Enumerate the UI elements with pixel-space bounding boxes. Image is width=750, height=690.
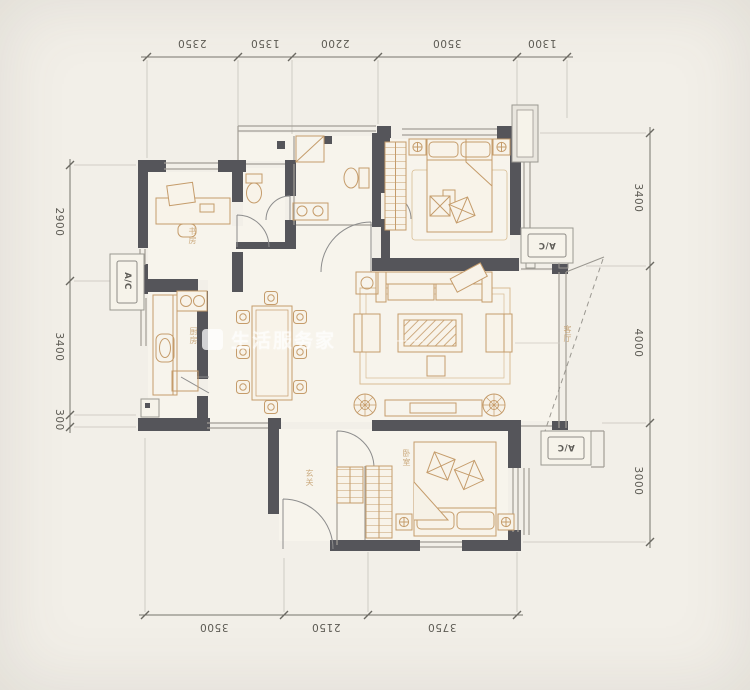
watermark-logo	[202, 329, 223, 350]
bedroom1-furniture	[385, 139, 510, 240]
room-label-living: 客厅	[562, 325, 573, 343]
dim-bottom-1: 3500	[184, 621, 244, 633]
dim-left-2: 3400	[53, 317, 65, 377]
floor-plan-photo: 2350 1350 2200 3500 1300 3500 2150 3750 …	[0, 0, 750, 690]
watermark-dash: ——	[396, 331, 422, 349]
dim-bottom-2: 2150	[296, 621, 356, 633]
dim-left-1: 2900	[53, 192, 65, 252]
dim-right-1: 3400	[632, 168, 644, 228]
dim-top-5: 1300	[512, 37, 572, 49]
ac-label-bottom-right: A/C	[546, 442, 586, 452]
ac-label-left: A/C	[122, 261, 132, 301]
watermark: 生活服务家 ——	[202, 326, 422, 353]
dim-bottom-3: 3750	[412, 621, 472, 633]
dim-top-4: 3500	[417, 37, 477, 49]
dim-left-3: 300	[53, 390, 65, 450]
dim-right-2: 4000	[632, 313, 644, 373]
ac-label-top-right: A/C	[527, 240, 567, 250]
dim-top-2: 1350	[235, 37, 295, 49]
room-label-bedroom: 卧室	[401, 449, 412, 467]
bay-window	[512, 105, 538, 162]
dim-right-3: 3000	[632, 451, 644, 511]
room-label-study: 书房	[187, 227, 198, 245]
room-label-kitchen: 厨房	[188, 327, 199, 345]
room-label-entry: 玄关	[304, 469, 315, 487]
dim-top-1: 2350	[162, 37, 222, 49]
watermark-text: 生活服务家	[231, 326, 336, 353]
dim-top-3: 2200	[305, 37, 365, 49]
